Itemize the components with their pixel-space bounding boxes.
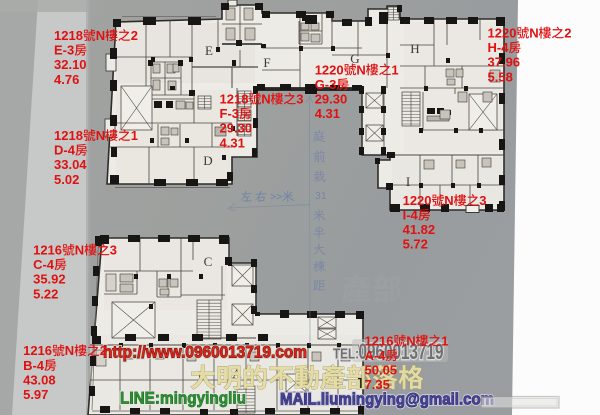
svg-text:1218: 1218 (54, 128, 83, 143)
svg-text:3: 3 (296, 92, 303, 107)
svg-text:4.31: 4.31 (315, 106, 340, 121)
svg-text:5.58: 5.58 (488, 69, 513, 84)
svg-text:5.97: 5.97 (23, 387, 48, 402)
svg-text:1220: 1220 (403, 193, 432, 208)
svg-text:N: N (96, 128, 105, 143)
svg-text:http://www.0960013719.com: http://www.0960013719.com (103, 343, 307, 362)
svg-text:7.35: 7.35 (365, 377, 390, 392)
svg-text:1220: 1220 (488, 26, 517, 41)
svg-text:N: N (261, 92, 270, 107)
svg-text:I-4: I-4 (403, 208, 419, 223)
svg-text:H: H (410, 41, 419, 56)
svg-text:1216: 1216 (33, 243, 62, 258)
svg-text:3: 3 (110, 243, 117, 258)
svg-text:B-4: B-4 (23, 358, 45, 373)
svg-text:1216: 1216 (23, 343, 52, 358)
svg-text:37.96: 37.96 (488, 55, 521, 70)
svg-text:E-3: E-3 (54, 43, 74, 58)
svg-text:2: 2 (131, 28, 138, 43)
svg-text:5.22: 5.22 (33, 286, 58, 301)
svg-text:29.30: 29.30 (220, 121, 253, 136)
svg-text:1: 1 (131, 128, 138, 143)
svg-text:35.92: 35.92 (33, 272, 66, 287)
svg-text:A-4: A-4 (365, 348, 387, 363)
svg-text:N: N (96, 28, 105, 43)
svg-text:N: N (529, 26, 538, 41)
svg-text:2: 2 (100, 343, 107, 358)
svg-text:41.82: 41.82 (403, 222, 436, 237)
svg-text:N: N (65, 343, 74, 358)
svg-text:C: C (204, 254, 213, 269)
svg-text:5.72: 5.72 (403, 237, 428, 252)
svg-text:MAIL.liumingying@gmail.com: MAIL.liumingying@gmail.com (280, 390, 494, 409)
svg-text:31: 31 (315, 190, 327, 202)
svg-text:>>: >> (270, 191, 282, 203)
svg-text:N: N (75, 243, 84, 258)
svg-text:32.10: 32.10 (54, 57, 87, 72)
svg-text:1218: 1218 (54, 28, 83, 43)
svg-text:2: 2 (564, 26, 571, 41)
svg-text:F-3: F-3 (220, 106, 240, 121)
svg-text:33.04: 33.04 (54, 157, 87, 172)
svg-text:G-3: G-3 (315, 77, 337, 92)
svg-text:1: 1 (441, 333, 448, 348)
svg-text:1216: 1216 (365, 333, 394, 348)
svg-text:1220: 1220 (315, 62, 344, 77)
svg-text:C-4: C-4 (33, 257, 55, 272)
svg-text:43.08: 43.08 (23, 372, 56, 387)
svg-text:E: E (205, 43, 213, 58)
svg-text:5.02: 5.02 (54, 172, 79, 187)
svg-text:LINE:mingyingliu: LINE:mingyingliu (120, 390, 246, 408)
svg-text:N: N (444, 193, 453, 208)
svg-text:4.31: 4.31 (220, 135, 245, 150)
svg-text:1218: 1218 (220, 92, 249, 107)
svg-text:F: F (263, 55, 270, 70)
svg-text:29.30: 29.30 (315, 92, 348, 107)
svg-text:50.05: 50.05 (365, 363, 398, 378)
svg-text:H-4: H-4 (488, 40, 510, 55)
svg-text:N: N (406, 333, 415, 348)
svg-text:I: I (406, 174, 410, 189)
svg-text:TEL:: TEL: (333, 346, 359, 363)
svg-text:D-4: D-4 (54, 143, 76, 158)
svg-text:N: N (356, 62, 365, 77)
svg-text:D: D (203, 153, 212, 168)
svg-text:1: 1 (391, 62, 398, 77)
svg-text:4.76: 4.76 (54, 72, 79, 87)
svg-text:3: 3 (479, 193, 486, 208)
